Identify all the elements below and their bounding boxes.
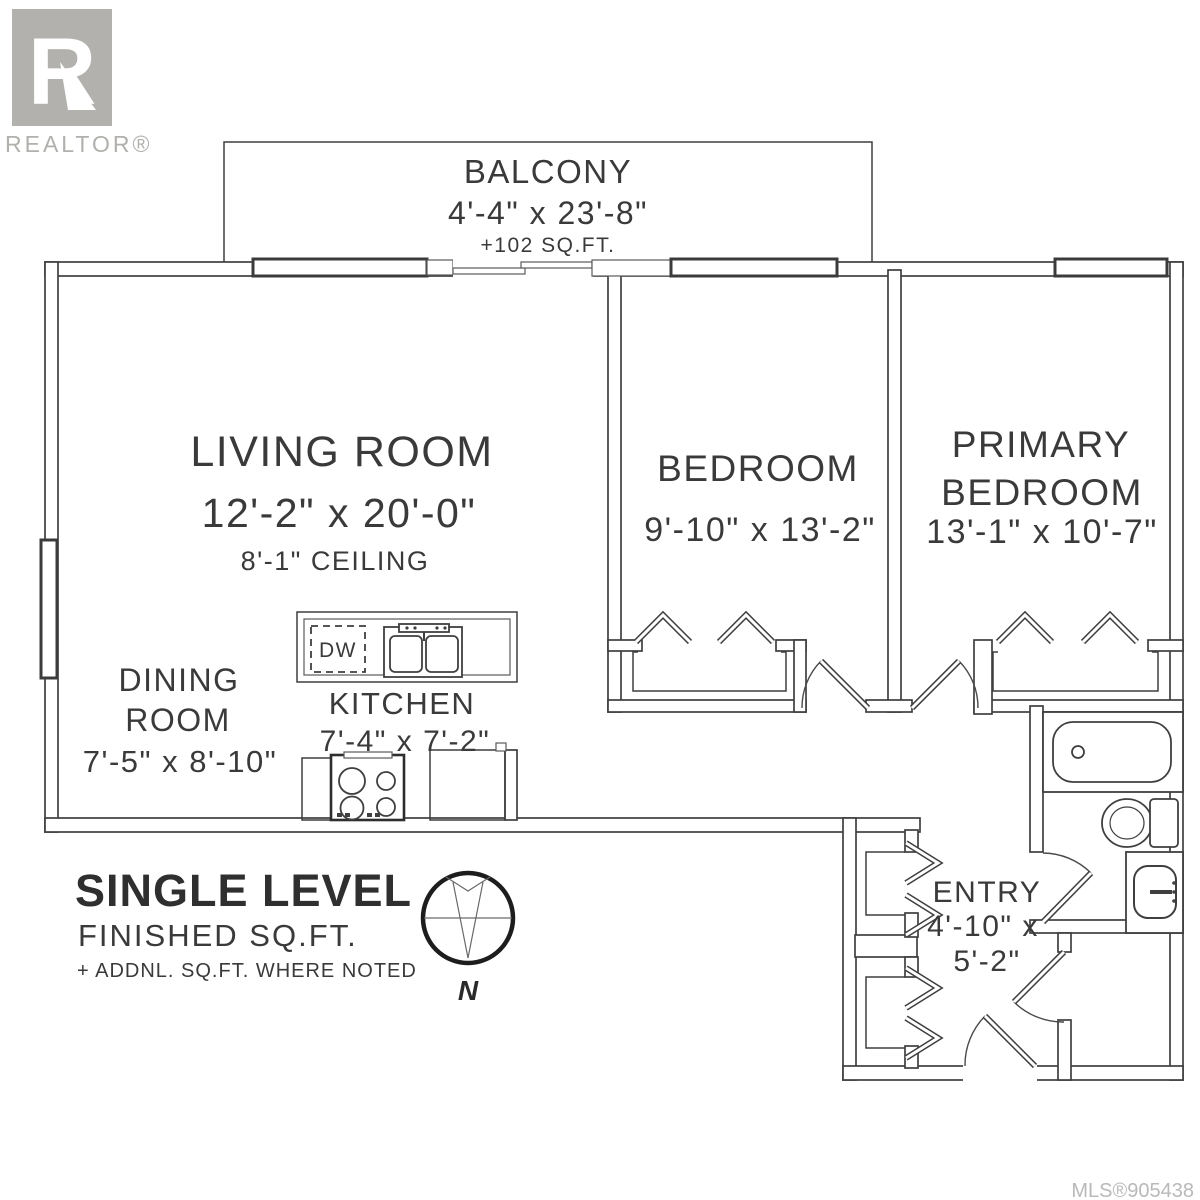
kitchen-sink [384, 624, 462, 677]
dining-room-label-1: DINING [119, 662, 240, 698]
mls-number: MLS®905438 [1071, 1180, 1194, 1200]
realtor-logo: R REALTOR® [5, 9, 152, 157]
north-compass: N [423, 873, 513, 1006]
living-room-label: LIVING ROOM [190, 428, 493, 476]
balcony-dim: 4'-4" x 23'-8" [448, 195, 648, 231]
legend: SINGLE LEVEL FINISHED SQ.FT. + ADDNL. SQ… [75, 865, 417, 982]
dining-room-dim: 7'-5" x 8'-10" [83, 744, 277, 779]
bedroom-label: BEDROOM [657, 448, 859, 489]
legend-note: + ADDNL. SQ.FT. WHERE NOTED [77, 960, 417, 982]
primary-bedroom-dim: 13'-1" x 10'-7" [926, 513, 1158, 551]
primary-bedroom-door [912, 661, 978, 708]
entry-dim-1: 4'-10" x [927, 910, 1039, 943]
kitchen-dim: 7'-4" x 7'-2" [320, 725, 491, 758]
legend-subtitle: FINISHED SQ.FT. [78, 918, 358, 953]
closet-door-chevrons [636, 615, 1137, 1058]
floor-plan: R REALTOR® [0, 0, 1200, 1200]
dining-room-label-2: ROOM [125, 702, 231, 738]
north-label: N [458, 975, 479, 1006]
bathtub [1043, 712, 1183, 792]
entry-dim-2: 5'-2" [953, 945, 1020, 978]
kitchen-label: KITCHEN [329, 686, 476, 721]
primary-bedroom-label-1: PRIMARY [952, 424, 1130, 465]
lower-room-door [1014, 952, 1064, 1022]
bedroom-window [671, 259, 837, 276]
dishwasher-label: DW [319, 639, 357, 662]
bathroom-door [1043, 853, 1091, 922]
balcony-area: +102 SQ.FT. [481, 234, 616, 257]
bedroom-door [802, 661, 868, 708]
toilet [1102, 799, 1178, 847]
dining-window [41, 540, 57, 678]
entry-label: ENTRY [933, 876, 1042, 909]
realtor-wordmark: REALTOR® [5, 131, 152, 157]
balcony-label: BALCONY [464, 153, 632, 190]
vanity-sink [1126, 852, 1183, 933]
primary-bedroom-label-2: BEDROOM [941, 472, 1143, 513]
entry-door [963, 1016, 1037, 1082]
balcony-sliding-door [453, 258, 593, 277]
living-window [253, 259, 427, 276]
legend-title: SINGLE LEVEL [75, 865, 412, 916]
living-room-ceiling: 8'-1" CEILING [241, 546, 430, 576]
primary-window [1055, 259, 1167, 276]
living-room-dim: 12'-2" x 20'-0" [202, 490, 477, 536]
stove [331, 752, 404, 820]
bedroom-dim: 9'-10" x 13'-2" [644, 511, 876, 549]
